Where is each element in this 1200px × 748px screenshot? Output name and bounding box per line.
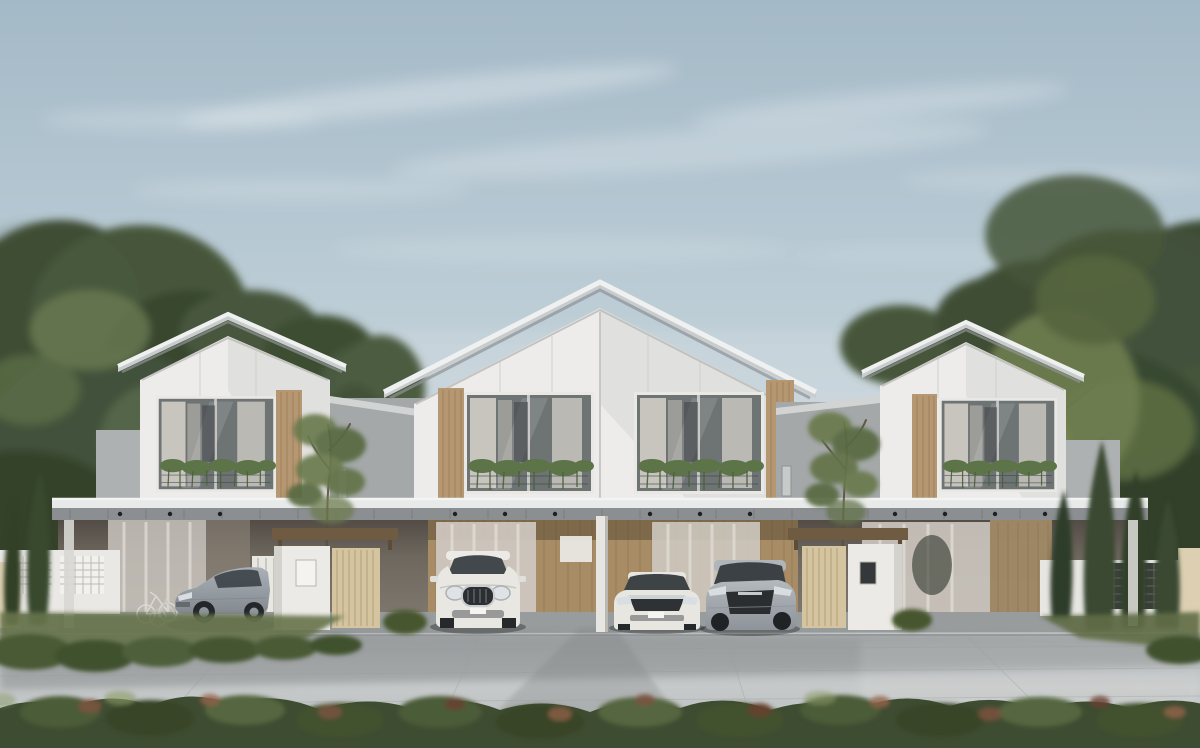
car-windshield — [624, 574, 690, 590]
window-unit — [634, 392, 764, 494]
car-grille — [462, 586, 494, 606]
interior-plant — [912, 535, 952, 595]
car-windshield — [448, 555, 508, 574]
wood-accent-panel — [438, 388, 464, 506]
car-wheel — [773, 612, 791, 630]
gate-trellis-beam — [788, 528, 908, 540]
gate-timber-door — [802, 546, 846, 628]
architectural-rendering — [0, 0, 1200, 748]
wood-accent-panel — [912, 394, 937, 504]
car-grille — [630, 599, 684, 611]
window-unit — [464, 392, 594, 494]
intercom-panel — [860, 562, 876, 584]
mailbox-panel — [296, 560, 316, 586]
window-unit — [939, 398, 1057, 492]
rendering-canvas — [0, 0, 1200, 748]
gate-trellis-beam — [272, 528, 398, 540]
window-unit — [156, 396, 276, 492]
car-wheel — [711, 613, 729, 631]
